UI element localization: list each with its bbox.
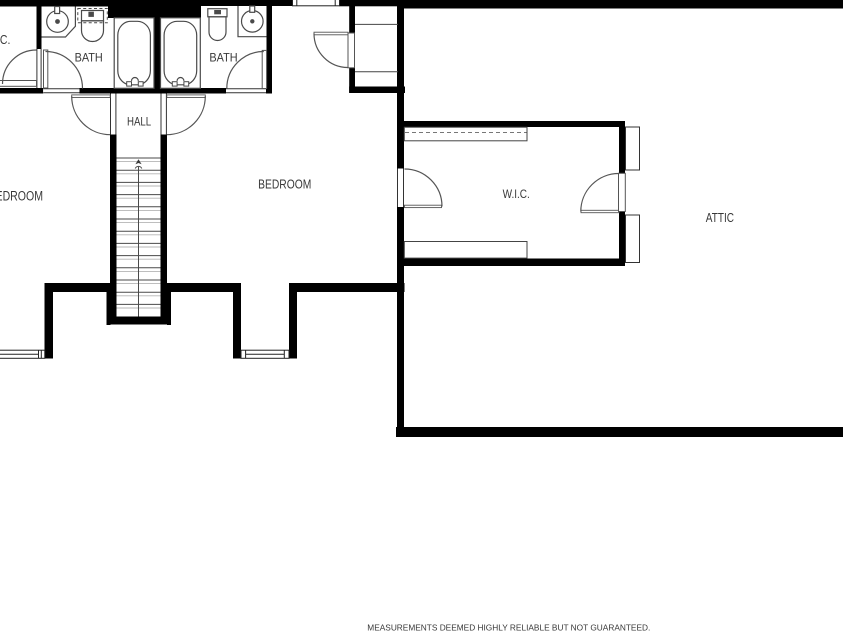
svg-text:BEDROOM: BEDROOM — [258, 177, 311, 192]
svg-text:MEASUREMENTS DEEMED HIGHLY REL: MEASUREMENTS DEEMED HIGHLY RELIABLE BUT … — [367, 623, 650, 632]
svg-text:HALL: HALL — [127, 117, 152, 129]
svg-text:ATTIC: ATTIC — [706, 211, 734, 225]
svg-text:BATH: BATH — [209, 51, 237, 65]
svg-text:BEDROOM: BEDROOM — [0, 189, 43, 204]
svg-text:BATH: BATH — [75, 51, 103, 65]
svg-text:W.I.C.: W.I.C. — [503, 187, 530, 201]
svg-text:W.I.C.: W.I.C. — [0, 33, 10, 47]
